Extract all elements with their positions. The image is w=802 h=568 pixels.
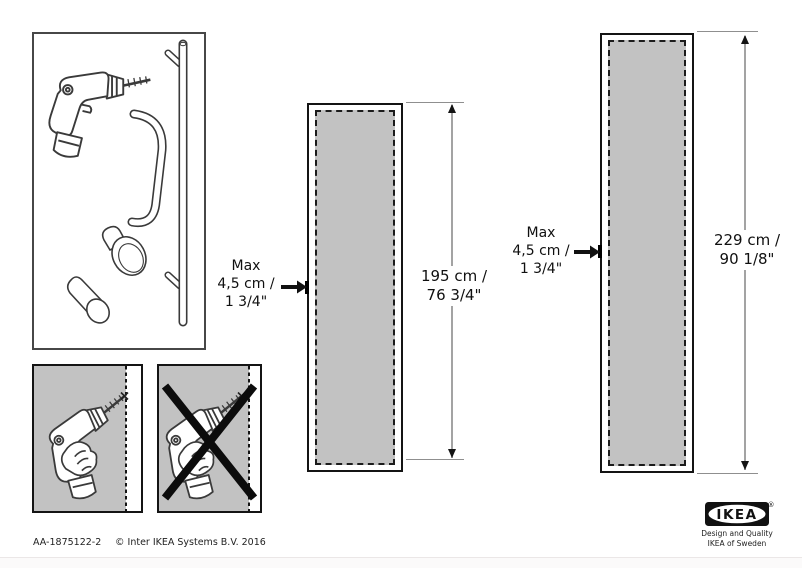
logo-tagline-line2: IKEA of Sweden xyxy=(697,539,777,549)
document-id: AA-1875122-2 xyxy=(33,537,101,548)
drilling-correct-illustration xyxy=(34,366,141,511)
right-arrow-icon xyxy=(280,280,307,294)
height-dimension-medium: 195 cm / 76 3/4" xyxy=(412,266,496,306)
arrowhead-down-icon xyxy=(448,449,456,458)
door-panel-tall xyxy=(600,33,694,473)
page-bottom-strip xyxy=(0,557,802,568)
ikea-wordmark: IKEA xyxy=(716,507,757,523)
height-dimension-tall-line2: 90 1/8" xyxy=(704,250,790,269)
dimension-extension-bottom-tall xyxy=(697,473,758,474)
max-depth-label-medium-line1: Max xyxy=(208,257,284,275)
max-depth-label-tall-line3: 1 3/4" xyxy=(502,260,580,278)
logo-tagline: Design and Quality IKEA of Sweden xyxy=(697,529,777,549)
dimension-extension-top-tall xyxy=(697,31,758,32)
max-depth-label-medium-line3: 1 3/4" xyxy=(208,293,284,311)
door-panel-medium-drill-area xyxy=(315,110,395,465)
arrowhead-up-icon xyxy=(741,35,749,44)
cylinder-knob-icon xyxy=(68,277,114,327)
door-panel-medium xyxy=(307,103,403,472)
door-panel-tall-drill-area xyxy=(608,40,686,466)
logo-tagline-line1: Design and Quality xyxy=(697,529,777,539)
round-knob-icon xyxy=(103,227,153,282)
door-handle-icon xyxy=(132,114,162,223)
parts-overview-box xyxy=(32,32,206,350)
height-dimension-medium-line1: 195 cm / xyxy=(412,267,496,286)
max-depth-label-medium: Max 4,5 cm / 1 3/4" xyxy=(208,257,284,311)
dimension-extension-bottom-medium xyxy=(406,459,464,460)
instruction-sheet: Max 4,5 cm / 1 3/4" 195 cm / 76 3/4" Max… xyxy=(0,0,802,568)
height-dimension-tall-line1: 229 cm / xyxy=(704,231,790,250)
right-arrow-icon xyxy=(573,245,600,259)
height-dimension-tall: 229 cm / 90 1/8" xyxy=(704,230,790,270)
drilling-correct-box xyxy=(32,364,143,513)
arrowhead-up-icon xyxy=(448,104,456,113)
mounting-rail-icon xyxy=(168,42,186,322)
max-depth-label-tall-line2: 4,5 cm / xyxy=(502,242,580,260)
max-depth-label-medium-line2: 4,5 cm / xyxy=(208,275,284,293)
ikea-logo: IKEA ® xyxy=(701,499,775,529)
copyright-text: © Inter IKEA Systems B.V. 2016 xyxy=(115,537,266,548)
arrowhead-down-icon xyxy=(741,461,749,470)
dimension-extension-top-medium xyxy=(406,102,464,103)
parts-illustration xyxy=(34,34,204,348)
drilling-incorrect-box xyxy=(157,364,262,513)
height-dimension-medium-line2: 76 3/4" xyxy=(412,286,496,305)
registered-mark-icon: ® xyxy=(768,501,775,509)
max-depth-label-tall: Max 4,5 cm / 1 3/4" xyxy=(502,224,580,278)
drilling-incorrect-illustration xyxy=(159,366,260,511)
max-depth-label-tall-line1: Max xyxy=(502,224,580,242)
